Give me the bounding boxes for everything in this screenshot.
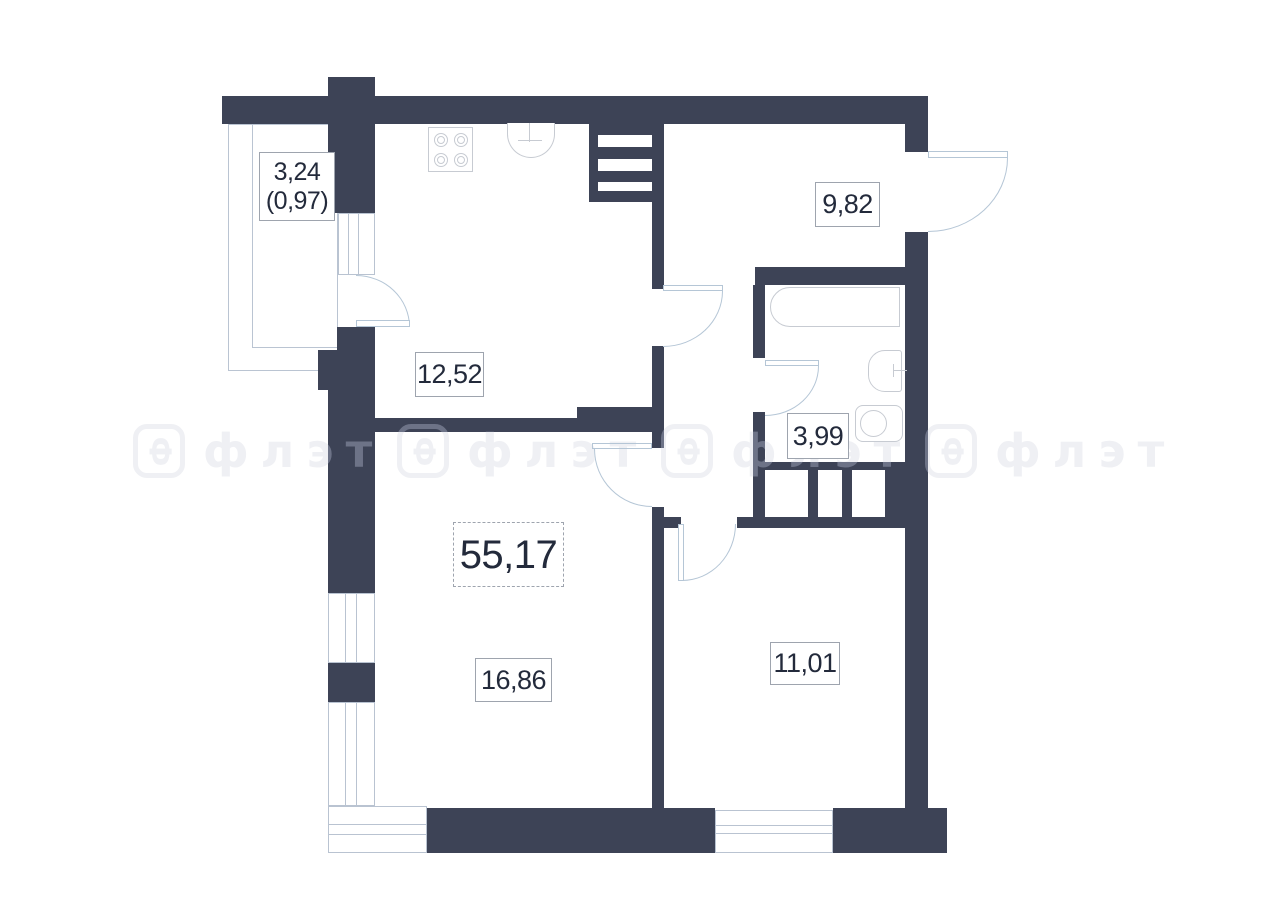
flet-logo-icon: Ф xyxy=(397,424,449,478)
bedroom-window-bottom-line xyxy=(715,833,833,834)
balcony-area-reduced-value: (0,97) xyxy=(266,187,328,216)
balcony-door-window-line xyxy=(348,213,349,275)
ladder-rung-4 xyxy=(598,191,652,202)
wall-left-b xyxy=(318,350,375,390)
living-window-left-lower-line xyxy=(345,702,346,806)
hallway-area-label: 9,82 xyxy=(815,182,880,227)
kitchen-sink-faucet-icon xyxy=(518,140,542,141)
living-window-left-upper xyxy=(328,593,375,663)
balcony-door-window xyxy=(338,213,375,275)
living-room-door-swing-arc xyxy=(594,449,652,507)
bedroom-door-swing-arc xyxy=(682,524,736,581)
bathroom-area-value: 3,99 xyxy=(793,422,844,451)
watermark-text: флэт xyxy=(995,424,1176,478)
washing-machine-drum-icon xyxy=(860,410,887,437)
bathtub-icon xyxy=(770,287,900,327)
ladder-rung-1 xyxy=(598,124,652,135)
wall-left-c xyxy=(328,390,375,593)
wall-right-main xyxy=(905,232,928,810)
flet-logo-icon: Ф xyxy=(133,424,185,478)
wall-bathroom-left-upper xyxy=(753,285,765,358)
wall-bathroom-left-lower xyxy=(753,412,765,462)
flet-logo-icon: Ф xyxy=(133,424,185,478)
bedroom-door-leaf xyxy=(678,524,684,581)
living-window-left-lower-line xyxy=(356,702,357,806)
entrance-door-leaf xyxy=(928,151,1008,158)
living-room-door-leaf xyxy=(592,443,652,449)
wall-hall-divider-upper xyxy=(652,124,664,289)
total-area-value: 55,17 xyxy=(460,534,558,576)
flet-logo-icon: Ф xyxy=(397,424,449,478)
balcony-area-value: 3,24 xyxy=(274,158,321,187)
hallway-area-value: 9,82 xyxy=(822,190,873,219)
wall-column-top-left xyxy=(328,77,375,213)
balcony-door-leaf xyxy=(356,320,410,327)
wall-kitchen-living-step xyxy=(577,407,657,418)
living-window-corner xyxy=(328,806,427,853)
stove-burner-icon xyxy=(454,133,468,147)
wall-left-a xyxy=(337,327,375,350)
kitchen-door-leaf xyxy=(663,285,723,291)
wall-left-d xyxy=(328,663,375,702)
flet-logo-icon: Ф xyxy=(925,424,977,478)
bathroom-sink-faucet-icon xyxy=(893,364,894,377)
balcony-area-label: 3,24 (0,97) xyxy=(259,152,335,221)
bathroom-door-leaf xyxy=(765,360,819,366)
wall-bottom-left xyxy=(427,808,715,853)
kitchen-door-swing-arc xyxy=(663,291,723,347)
balcony-door-window-line xyxy=(358,213,359,275)
watermark-text: флэт xyxy=(995,424,1176,478)
living-window-left-upper-line xyxy=(356,593,357,663)
stove-burner-icon xyxy=(434,153,448,167)
kitchen-area-label: 12,52 xyxy=(415,352,484,397)
kitchen-area-value: 12,52 xyxy=(417,360,482,389)
living-window-corner-line xyxy=(328,834,427,835)
vent-shaft-bar-3 xyxy=(885,470,905,517)
stove-burner-icon xyxy=(454,153,468,167)
vent-shaft-top-rail xyxy=(753,462,905,470)
entrance-door-swing-arc xyxy=(928,158,1008,232)
living-room-area-label: 16,86 xyxy=(475,658,552,702)
flet-logo-icon: Ф xyxy=(661,424,713,478)
vent-shaft-bar-2 xyxy=(842,470,852,517)
bathroom-door-swing-arc xyxy=(765,366,819,416)
flet-logo-icon: Ф xyxy=(925,424,977,478)
bathroom-area-label: 3,99 xyxy=(787,413,849,459)
floor-plan: 3,24 (0,97) 12,52 9,82 3,99 55,17 16,86 … xyxy=(0,0,1280,905)
living-window-left-upper-line xyxy=(345,593,346,663)
stove-icon xyxy=(428,127,473,172)
bedroom-area-value: 11,01 xyxy=(773,649,836,678)
living-room-area-value: 16,86 xyxy=(481,666,546,695)
stove-burner-icon xyxy=(434,133,448,147)
ladder-rung-3 xyxy=(598,171,652,182)
bedroom-window-bottom xyxy=(715,810,833,853)
total-area-label: 55,17 xyxy=(453,522,564,587)
ladder-left-rail xyxy=(589,124,598,202)
ladder-rung-2 xyxy=(598,147,652,159)
bathroom-sink-faucet-icon xyxy=(893,370,907,371)
bedroom-area-label: 11,01 xyxy=(770,642,840,685)
bedroom-window-bottom-line xyxy=(715,825,833,826)
wall-bottom-right xyxy=(833,808,947,853)
flet-logo-icon: Ф xyxy=(661,424,713,478)
bathroom-sink-icon xyxy=(868,350,902,392)
wall-right-upper xyxy=(905,124,928,152)
living-window-corner-line xyxy=(328,824,427,825)
wall-bathroom-top xyxy=(755,267,905,285)
wall-room-divider-lower xyxy=(652,507,664,808)
living-window-left-lower xyxy=(328,702,375,806)
vent-shaft-bar-1 xyxy=(808,470,818,517)
wall-bedroom-top xyxy=(737,517,905,528)
wall-kitchen-living-divider xyxy=(375,418,657,432)
vent-shaft-left-rail xyxy=(753,470,765,517)
wall-hall-divider-mid xyxy=(652,346,664,448)
